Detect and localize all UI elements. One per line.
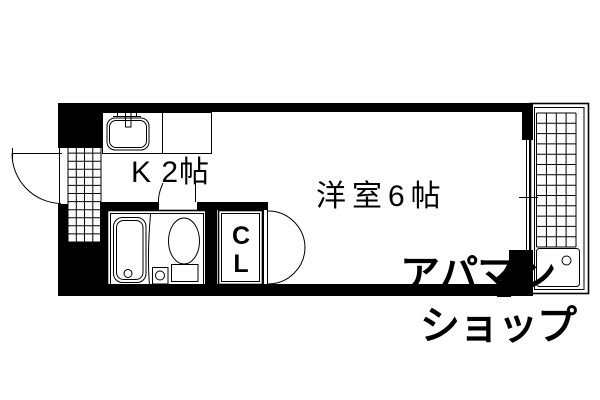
closet-label-c: C xyxy=(232,222,250,250)
floor-plan: アパマン ショップ xyxy=(0,0,600,400)
floor-plan-page: アパマン ショップ xyxy=(0,0,600,400)
wall-topleft-block xyxy=(58,103,102,148)
wall-top xyxy=(58,103,533,112)
wall-bath-top-right xyxy=(197,202,268,210)
closet-label-l: L xyxy=(233,250,248,278)
wall-bottom xyxy=(58,284,533,296)
watermark-line2: ショップ xyxy=(420,304,577,348)
wall-bath-top-left xyxy=(100,202,159,210)
room-label: 洋室6帖 xyxy=(316,180,447,213)
wall-right-top xyxy=(522,103,533,140)
kitchen-label: K 2帖 xyxy=(131,156,210,189)
